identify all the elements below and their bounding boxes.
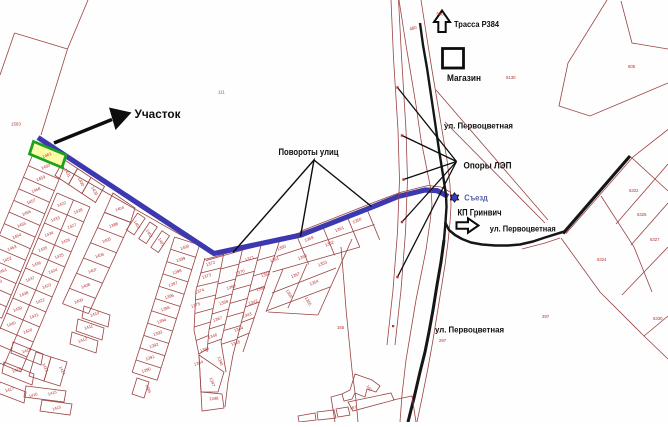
svg-text:Повороты улиц: Повороты улиц bbox=[279, 147, 340, 157]
svg-text:ул. Первоцветная: ул. Первоцветная bbox=[444, 121, 513, 131]
svg-text:111: 111 bbox=[218, 90, 225, 95]
svg-text:1503: 1503 bbox=[11, 122, 21, 127]
svg-text:5130: 5130 bbox=[506, 75, 516, 80]
svg-text:ул. Первоцветная: ул. Первоцветная bbox=[435, 325, 504, 335]
svg-text:Участок: Участок bbox=[135, 107, 182, 121]
svg-text:Трасса Р384: Трасса Р384 bbox=[454, 19, 499, 29]
svg-text:297: 297 bbox=[439, 338, 447, 343]
svg-text:6330: 6330 bbox=[653, 316, 663, 321]
svg-text:ул. Первоцветная: ул. Первоцветная bbox=[490, 224, 556, 234]
svg-text:540: 540 bbox=[437, 12, 445, 17]
svg-text:605: 605 bbox=[628, 64, 636, 69]
svg-text:6325: 6325 bbox=[637, 212, 647, 217]
svg-text:165: 165 bbox=[337, 325, 345, 330]
svg-text:Съезд: Съезд bbox=[464, 193, 488, 203]
svg-text:1348: 1348 bbox=[209, 395, 219, 401]
svg-text:6327: 6327 bbox=[650, 237, 660, 242]
svg-text:6324: 6324 bbox=[597, 257, 607, 262]
svg-text:КП Гринвич: КП Гринвич bbox=[458, 208, 502, 218]
svg-text:Магазин: Магазин bbox=[447, 73, 481, 83]
svg-text:297: 297 bbox=[542, 314, 550, 319]
svg-text:6322: 6322 bbox=[629, 188, 639, 193]
